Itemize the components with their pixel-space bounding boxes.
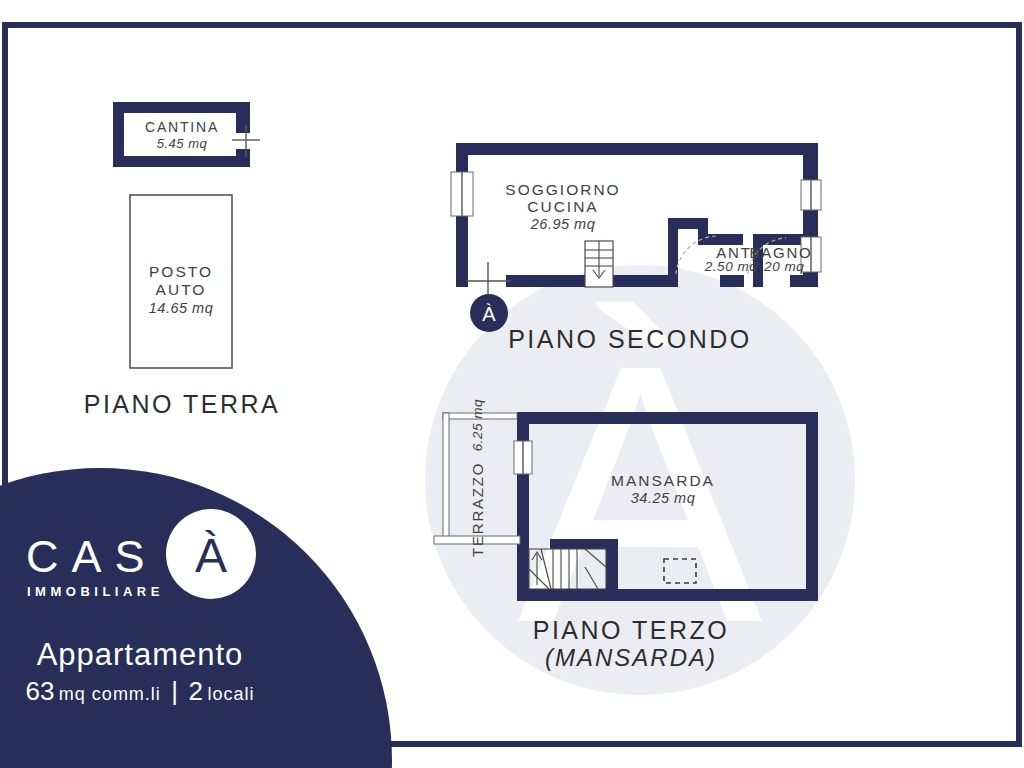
anti-area: 2.50 mq xyxy=(705,259,757,274)
soggiorno-label-line2: CUCINA xyxy=(527,198,598,216)
terrazzo-label: TERRAZZO xyxy=(469,462,486,557)
brand-wordmark: CAS xyxy=(26,531,158,583)
soggiorno-area: 26.95 mq xyxy=(531,216,595,232)
rooms-value: 2 xyxy=(189,676,203,706)
piano-terzo-subtitle: (MANSARDA) xyxy=(545,644,717,672)
skylight-dashed xyxy=(664,559,696,583)
piano-terzo-title: PIANO TERZO xyxy=(533,616,730,645)
terrazzo-area: 6.25 mq xyxy=(470,399,485,451)
cantina-area: 5.45 mq xyxy=(157,136,207,151)
brand-subtitle: IMMOBILIARE xyxy=(27,584,164,599)
area-unit: mq comm.li xyxy=(59,684,161,704)
staircase-up xyxy=(529,549,606,589)
window xyxy=(801,180,821,210)
piano-terzo-plan xyxy=(434,412,818,601)
piano-terra-title: PIANO TERRA xyxy=(84,390,281,419)
floorplan-page: { "colors": { "navy": "#272e59", "line":… xyxy=(0,0,1024,768)
posto-auto-area: 14.65 mq xyxy=(149,300,213,316)
area-value: 63 xyxy=(25,676,54,706)
staircase-down xyxy=(585,241,613,287)
mansarda-area: 34.25 mq xyxy=(631,490,695,506)
window xyxy=(451,172,473,216)
entrance-marker-badge: À xyxy=(470,294,508,332)
cantina-label: CANTINA xyxy=(145,119,219,135)
piano-secondo-title: PIANO SECONDO xyxy=(508,325,752,354)
terrazzo-label-block: TERRAZZO 6.25 mq xyxy=(468,399,486,557)
piano-secondo-plan xyxy=(451,143,821,301)
posto-auto-label-line2: AUTO xyxy=(156,281,207,299)
bagno-area: 2.20 mq xyxy=(752,259,804,274)
entrance-marker-letter: À xyxy=(482,304,495,324)
mansarda-label: MANSARDA xyxy=(611,472,715,490)
specs-separator-icon: | xyxy=(165,676,184,706)
listing-specs: 63 mq comm.li | 2 locali xyxy=(0,676,290,707)
window xyxy=(514,441,532,474)
soggiorno-label-line1: SOGGIORNO xyxy=(505,181,620,199)
brand-accent-letter: À xyxy=(195,532,227,580)
posto-auto-label-line1: POSTO xyxy=(149,263,213,281)
rooms-unit: locali xyxy=(207,684,254,704)
brand-accent-circle: À xyxy=(166,509,256,599)
listing-type-label: Appartamento xyxy=(0,637,290,673)
